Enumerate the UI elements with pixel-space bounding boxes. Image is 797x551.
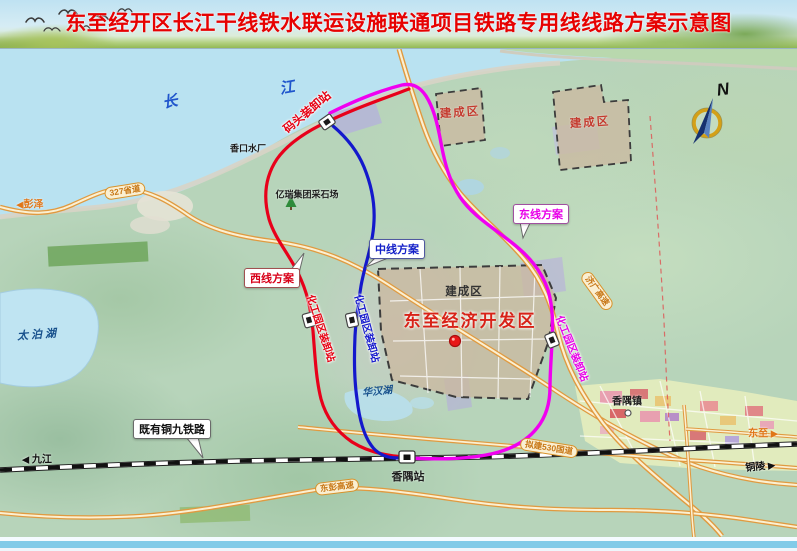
page: 东至经开区长江干线铁水联运设施联通项目铁路专用线线路方案示意图 <box>0 0 797 551</box>
xiangyu-station-marker <box>399 451 415 463</box>
tongling-label: 铜陵 <box>745 461 766 474</box>
huahan-lake-label: 华汉湖 <box>361 381 392 399</box>
map-area: 长 江 码头装卸站 香口水厂 亿瑞集团采石场 327省道 济广高速 拟建530国… <box>0 48 797 538</box>
compass-north-label: N <box>716 79 731 101</box>
built-up-area-2-label: 建成区 <box>569 113 611 132</box>
title-banner: 东至经开区长江干线铁水联运设施联通项目铁路专用线线路方案示意图 <box>0 0 797 48</box>
built-up-central-label: 建成区 <box>445 283 483 299</box>
taibo-lake-label: 太泊湖 <box>16 325 59 344</box>
jiujiang-label: 九江 <box>32 455 52 466</box>
xiangyu-town-label: 香隅镇 <box>612 393 642 408</box>
dev-zone-label: 东至经济开发区 <box>404 307 537 332</box>
tongling-arrow-icon: ▶ <box>768 460 776 471</box>
pengze-label: 彭泽 <box>23 200 43 211</box>
map-graphics <box>0 49 797 538</box>
middle-route-callout: 中线方案 <box>369 239 425 259</box>
dongzhi-label: 东至 <box>748 429 768 440</box>
quarry-ground-2 <box>130 216 170 234</box>
pond-3 <box>410 397 434 409</box>
direction-dongzhi: 东至 ▶ <box>748 425 778 440</box>
dev-zone-dot <box>450 336 461 347</box>
pengze-arrow-icon: ◀ <box>17 200 24 210</box>
page-title: 东至经开区长江干线铁水联运设施联通项目铁路专用线线路方案示意图 <box>0 0 797 48</box>
existing-railway-callout: 既有铜九铁路 <box>133 419 211 439</box>
field-1 <box>48 241 149 266</box>
compass-icon <box>692 98 722 144</box>
dongzhi-arrow-icon: ▶ <box>771 429 778 439</box>
built-up-area-1-label: 建成区 <box>439 103 481 122</box>
direction-pengze: ◀彭泽 <box>17 196 44 211</box>
quarry-label: 亿瑞集团采石场 <box>275 188 338 201</box>
bottom-border-blue <box>0 541 797 548</box>
xiangyu-station-label: 香隅站 <box>392 468 425 484</box>
dev-zone-dot-highlight <box>452 338 455 341</box>
jiujiang-arrow-icon: ◀ <box>22 455 29 465</box>
east-route-callout: 东线方案 <box>513 204 569 224</box>
water-plant-label: 香口水厂 <box>230 142 266 155</box>
xiangyu-town-dot <box>625 410 631 416</box>
direction-tongling: 铜陵 ▶ <box>744 456 775 474</box>
direction-jiujiang: ◀ 九江 <box>22 451 52 466</box>
west-route-callout: 西线方案 <box>244 268 300 288</box>
pond-2 <box>490 147 510 159</box>
